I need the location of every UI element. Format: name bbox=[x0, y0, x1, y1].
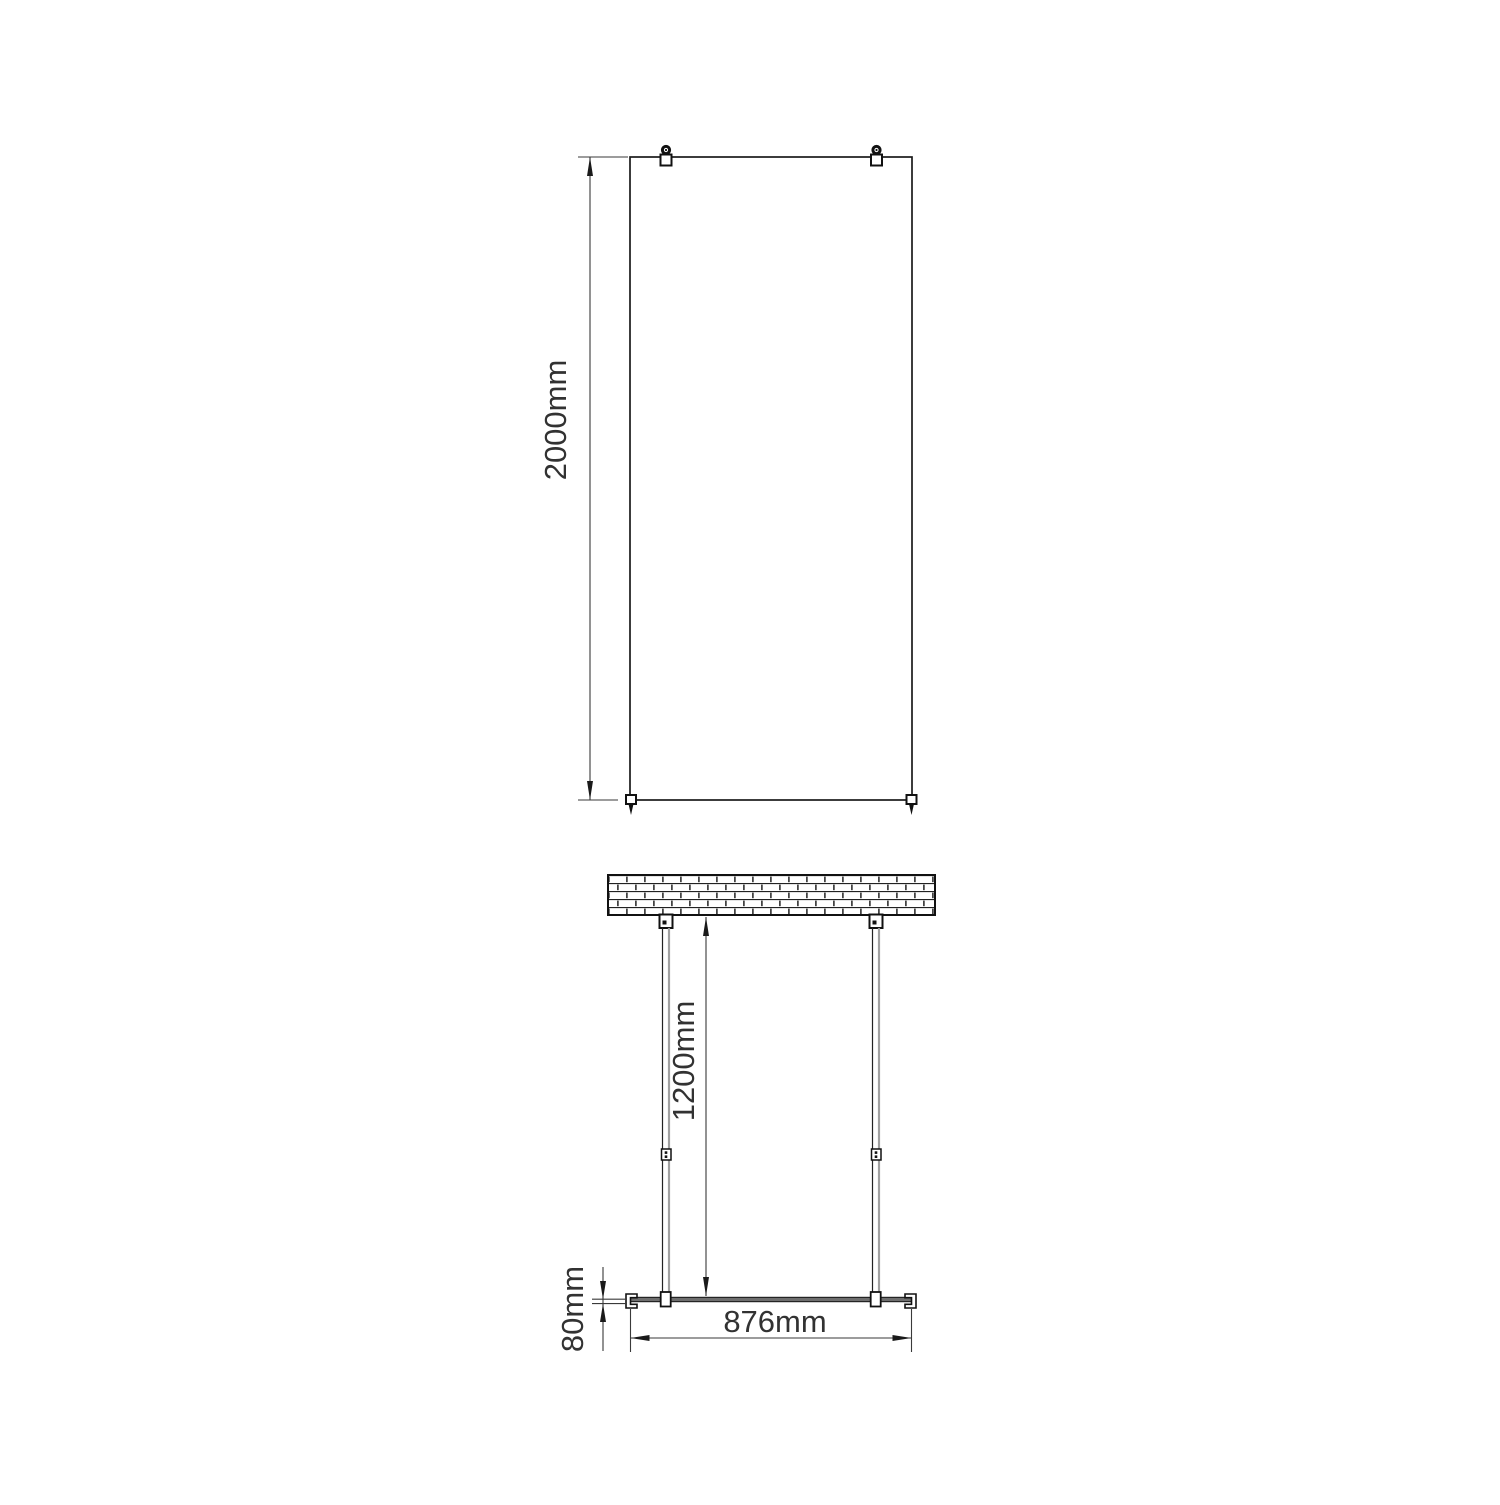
anchor-pin-icon bbox=[629, 804, 634, 815]
arrowhead-up-icon bbox=[703, 917, 709, 936]
wall-bracket-left bbox=[660, 915, 673, 929]
front-view: 2000mm bbox=[538, 146, 917, 815]
anchor-block bbox=[626, 795, 636, 804]
bar-joint-left bbox=[662, 1149, 672, 1160]
depth-dimension: 1200mm bbox=[666, 917, 709, 1296]
anchor-block bbox=[907, 795, 917, 804]
glass-panel-outline bbox=[630, 157, 912, 800]
technical-drawing-page: 2000mm bbox=[0, 0, 1500, 1500]
top-clamp-right bbox=[871, 155, 882, 166]
floor-anchor-right bbox=[907, 795, 917, 815]
glass-clamp-right bbox=[871, 1292, 881, 1307]
floor-anchor-left bbox=[626, 795, 636, 815]
width-dimension: 876mm bbox=[631, 1304, 912, 1352]
brick-wall bbox=[608, 875, 935, 915]
height-dimension: 2000mm bbox=[538, 157, 628, 800]
joint-screw-icon bbox=[665, 1151, 668, 1154]
technical-drawing-canvas: 2000mm bbox=[0, 0, 1500, 1500]
arrowhead-down-icon bbox=[587, 781, 593, 800]
wall-bracket-right bbox=[870, 915, 883, 929]
glass-clamp-left bbox=[661, 1292, 671, 1307]
bar-end-dot bbox=[665, 149, 667, 151]
arrowhead-up-icon bbox=[600, 1304, 606, 1322]
width-dimension-label: 876mm bbox=[723, 1304, 826, 1339]
joint-screw-icon bbox=[875, 1151, 878, 1154]
support-bar-end-right bbox=[871, 146, 882, 165]
arrowhead-down-icon bbox=[600, 1281, 606, 1299]
arrowhead-down-icon bbox=[703, 1277, 709, 1296]
support-bar-right bbox=[872, 928, 882, 1293]
depth-dimension-label: 1200mm bbox=[666, 1001, 701, 1122]
glass-panel-top-view bbox=[630, 1297, 912, 1301]
top-clamp-left bbox=[661, 155, 672, 166]
arrowhead-up-icon bbox=[587, 157, 593, 176]
arrowhead-left-icon bbox=[631, 1335, 650, 1341]
bar-joint-right bbox=[872, 1149, 882, 1160]
arrowhead-right-icon bbox=[893, 1335, 912, 1341]
joint-body bbox=[662, 1149, 672, 1160]
bar-end-dot bbox=[875, 149, 877, 151]
joint-body bbox=[872, 1149, 882, 1160]
offset-dimension: 80mm bbox=[555, 1266, 627, 1352]
bracket-screw-icon bbox=[873, 921, 877, 925]
anchor-pin-icon bbox=[909, 804, 914, 815]
bracket-screw-icon bbox=[663, 921, 667, 925]
offset-dimension-label: 80mm bbox=[555, 1266, 590, 1352]
plan-view: 1200mm 80mm 876mm bbox=[555, 875, 935, 1352]
height-dimension-label: 2000mm bbox=[538, 360, 573, 481]
joint-screw-icon bbox=[665, 1155, 668, 1158]
joint-screw-icon bbox=[875, 1155, 878, 1158]
support-bar-end-left bbox=[661, 146, 672, 165]
